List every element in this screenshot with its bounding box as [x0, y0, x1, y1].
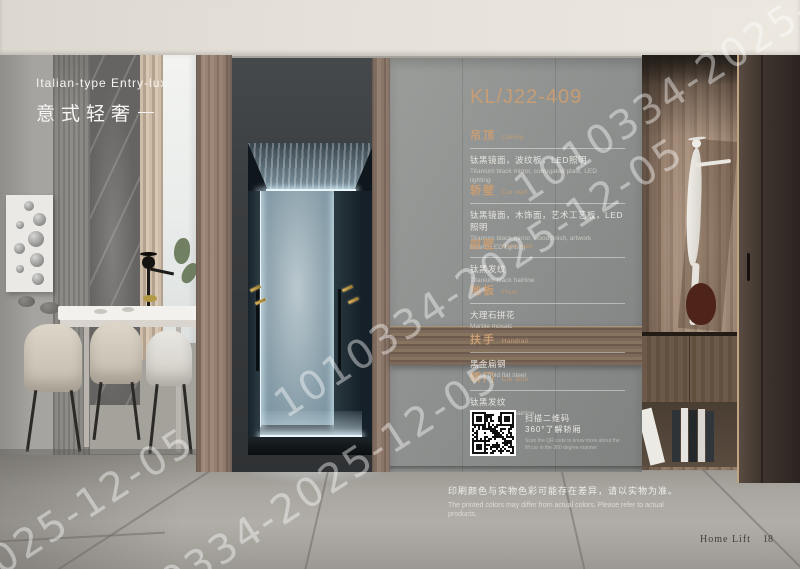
elevator-back-wall	[260, 191, 334, 425]
panel-seam	[462, 58, 463, 472]
tableware	[143, 295, 157, 302]
skirting	[0, 449, 196, 455]
door-handle	[747, 253, 750, 281]
book	[706, 411, 714, 462]
qr-code	[470, 410, 516, 456]
wood-pillar-right	[372, 58, 392, 472]
page-number: 18	[763, 534, 773, 545]
catalog-page: KL/J22-409 吊顶Ceiling 钛黑镜面，波纹板，LED照明 Tita…	[0, 0, 800, 569]
spec-section-front-wall: 前壁Front wall 钛黑发纹 Titanium black hairlin…	[470, 235, 628, 286]
table-leg	[84, 327, 89, 447]
book	[689, 410, 697, 462]
disclaimer: 印刷颜色与实物色彩可能存在差异，请以实物为准。 The printed colo…	[448, 484, 678, 519]
door-edge-light	[737, 55, 739, 483]
book	[672, 410, 680, 462]
book	[681, 408, 688, 462]
spec-panel: KL/J22-409 吊顶Ceiling 钛黑镜面，波纹板，LED照明 Tita…	[390, 58, 642, 472]
wall-art-panel	[6, 195, 53, 292]
display-niche	[642, 55, 737, 470]
elevator-opening	[248, 143, 374, 455]
elevator-sill	[248, 437, 374, 455]
title-chinese: 意式轻奢	[36, 99, 136, 126]
elevator	[232, 58, 390, 472]
wood-pillar-left	[196, 55, 232, 472]
elevator-floor-glow	[260, 411, 362, 437]
ceiling	[0, 0, 800, 56]
title-block: Italian-type Entry-lux 意式轻奢	[36, 76, 167, 126]
entry-door	[737, 55, 800, 483]
tableware	[122, 307, 134, 312]
window	[163, 55, 196, 343]
spec-section-floor: 地板Floor 大理石拼花 Marble mosaic	[470, 281, 628, 332]
elevator-door-left	[248, 191, 260, 437]
gold-handle	[348, 297, 359, 304]
cabinet-gap	[689, 336, 690, 402]
elevator-door-right	[334, 191, 374, 437]
brand-label: Home Lift	[700, 534, 751, 545]
book-shelf	[642, 402, 737, 467]
model-number: KL/J22-409	[470, 86, 582, 109]
door-seam	[761, 55, 763, 483]
title-dash	[138, 112, 154, 113]
book	[698, 409, 705, 462]
tableware	[94, 309, 107, 314]
pebble-decor	[18, 296, 35, 307]
title-english: Italian-type Entry-lux	[36, 76, 167, 90]
sculpture	[692, 139, 701, 148]
table-lamp	[142, 256, 155, 269]
niche-soffit	[642, 55, 737, 85]
page-footer: Home Lift 18	[700, 534, 773, 545]
qr-block: 扫描二维码 360°了解轿厢 Scan the QR code to know …	[470, 410, 620, 456]
vase	[686, 283, 716, 325]
book	[642, 408, 665, 466]
spec-section-ceiling: 吊顶Ceiling 钛黑镜面，波纹板，LED照明 Titanium black …	[470, 126, 628, 185]
pebble-decor	[40, 302, 60, 314]
gold-handle	[342, 285, 353, 292]
table-lamp	[140, 252, 157, 256]
elevator-ceiling	[248, 143, 374, 191]
qr-caption: 扫描二维码 360°了解轿厢 Scan the QR code to know …	[525, 410, 620, 456]
